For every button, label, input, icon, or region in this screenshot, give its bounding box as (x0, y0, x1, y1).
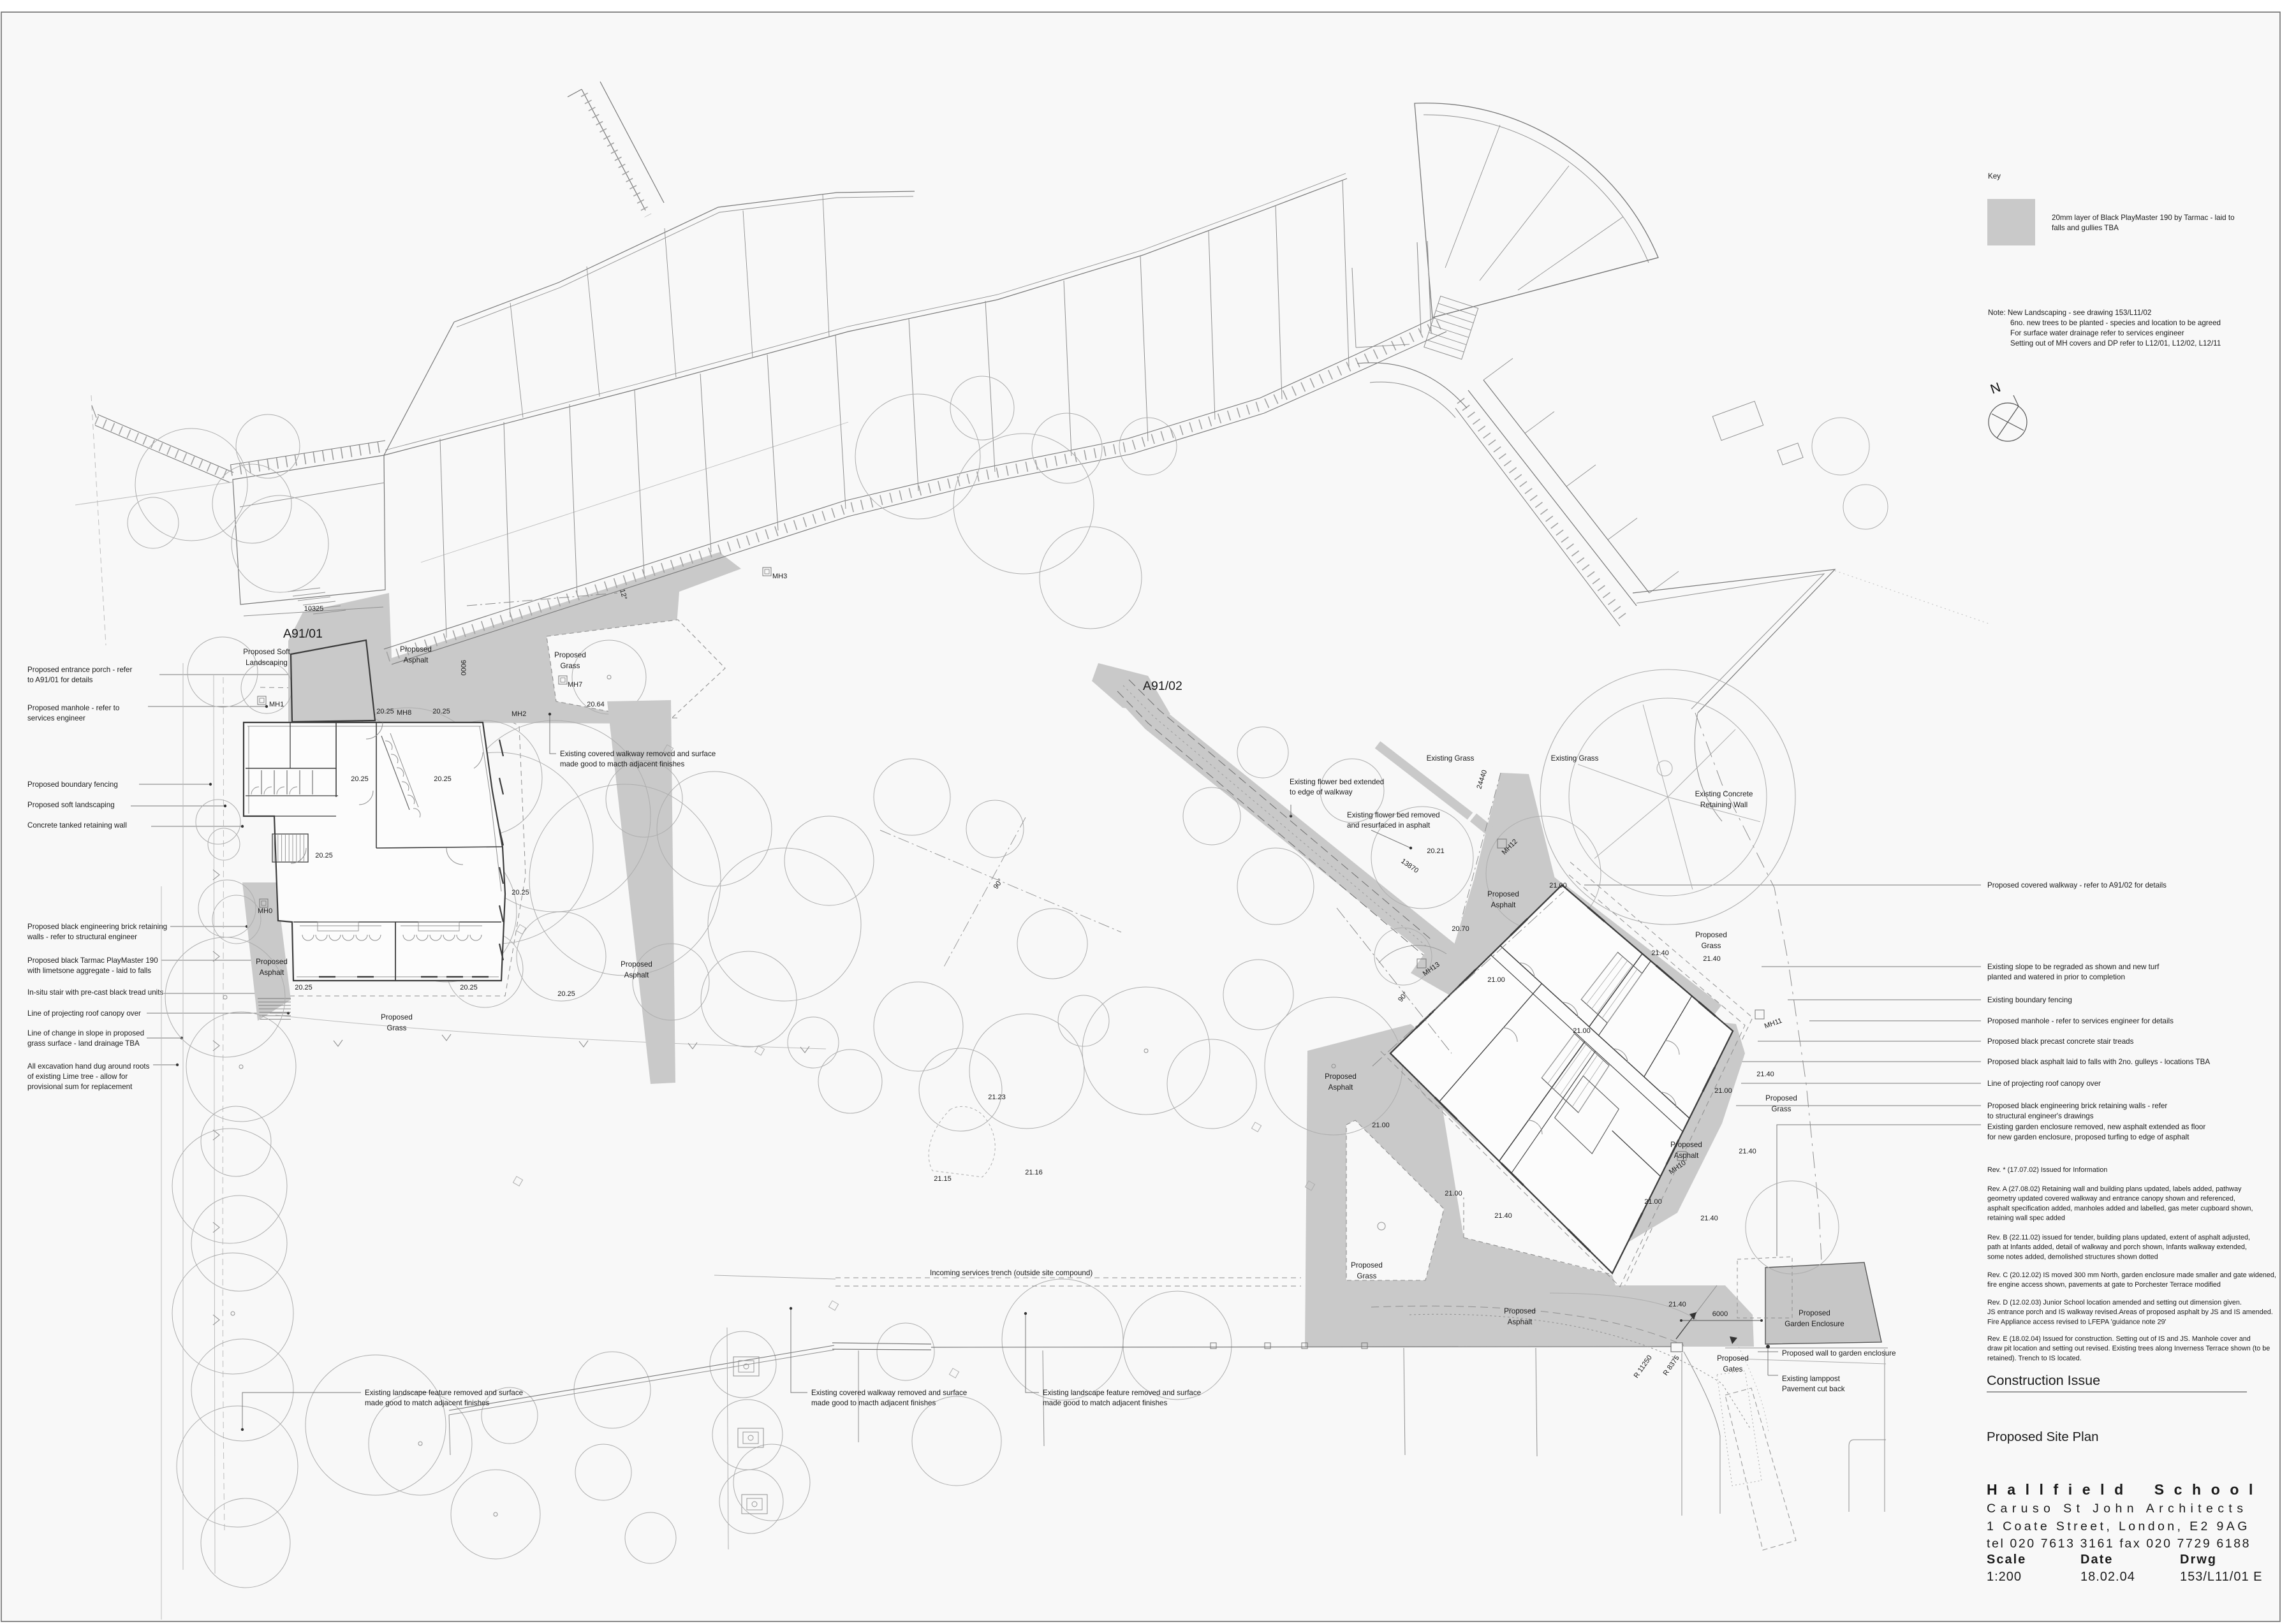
svg-text:21.00: 21.00 (1372, 1122, 1390, 1129)
svg-text:Proposed black precast concret: Proposed black precast concrete stair tr… (1987, 1037, 2134, 1046)
svg-text:services engineer: services engineer (27, 714, 85, 722)
svg-text:made good to match adjacent fi: made good to match adjacent finishes (1043, 1399, 1167, 1407)
svg-text:Proposed: Proposed (1670, 1141, 1702, 1149)
svg-text:Proposed black engineering bri: Proposed black engineering brick retaini… (1987, 1102, 2167, 1110)
svg-text:MH3: MH3 (772, 573, 787, 580)
svg-text:Garden Enclosure: Garden Enclosure (1785, 1320, 1844, 1328)
svg-text:20.25: 20.25 (557, 990, 575, 998)
svg-text:Grass: Grass (1702, 942, 1721, 950)
svg-text:Grass: Grass (1772, 1105, 1792, 1113)
svg-text:Asphalt: Asphalt (404, 656, 429, 664)
svg-text:Proposed: Proposed (1325, 1072, 1357, 1081)
svg-text:20.25: 20.25 (295, 984, 313, 991)
svg-text:Caruso St John Architects: Caruso St John Architects (1987, 1502, 2248, 1516)
svg-text:153/L11/01 E: 153/L11/01 E (2180, 1570, 2263, 1584)
svg-text:Rev. E (18.02.04) Issued for c: Rev. E (18.02.04) Issued for constructio… (1987, 1335, 2251, 1343)
svg-text:asphalt specification added, m: asphalt specification added, manholes ad… (1987, 1204, 2253, 1212)
svg-text:MH7: MH7 (568, 681, 582, 689)
svg-text:Asphalt: Asphalt (624, 971, 649, 979)
svg-text:Grass: Grass (561, 662, 580, 670)
svg-text:21.00: 21.00 (1644, 1198, 1662, 1206)
svg-text:Existing landscape feature rem: Existing landscape feature removed and s… (1043, 1389, 1201, 1397)
svg-text:Proposed: Proposed (1487, 890, 1519, 898)
svg-text:Proposed: Proposed (1799, 1309, 1830, 1317)
svg-text:Rev. D (12.02.03) Junior Schoo: Rev. D (12.02.03) Junior School location… (1987, 1299, 2242, 1306)
svg-text:Proposed covered walkway - ref: Proposed covered walkway - refer to A91/… (1987, 881, 2167, 889)
svg-text:Concrete tanked retaining wall: Concrete tanked retaining wall (27, 821, 127, 830)
svg-text:Asphalt: Asphalt (260, 969, 284, 977)
svg-text:JS entrance porch and IS walkw: JS entrance porch and IS walkway revised… (1987, 1308, 2273, 1316)
svg-text:to structural engineer's drawi: to structural engineer's drawings (1987, 1112, 2094, 1120)
svg-text:for new garden enclosure, prop: for new garden enclosure, proposed turfi… (1987, 1133, 2189, 1141)
svg-text:20.25: 20.25 (432, 708, 450, 715)
svg-text:Rev. B (22.11.02) issued for t: Rev. B (22.11.02) issued for tender, bui… (1987, 1234, 2250, 1241)
svg-text:fire engine access shown, pave: fire engine access shown, pavements at g… (1987, 1281, 2221, 1289)
svg-text:20.25: 20.25 (511, 889, 529, 896)
svg-text:Retaining Wall: Retaining Wall (1700, 801, 1748, 809)
svg-text:Asphalt: Asphalt (1328, 1083, 1353, 1092)
svg-text:Landscaping: Landscaping (246, 659, 288, 667)
svg-text:Asphalt: Asphalt (1491, 901, 1516, 909)
svg-text:A91/02: A91/02 (1143, 679, 1182, 693)
svg-text:A91/01: A91/01 (283, 627, 323, 641)
svg-text:For surface water drainage ref: For surface water drainage refer to serv… (2010, 329, 2184, 337)
svg-text:21.40: 21.40 (1700, 1215, 1718, 1222)
svg-text:18.02.04: 18.02.04 (2080, 1570, 2135, 1584)
svg-text:Existing landscape feature rem: Existing landscape feature removed and s… (365, 1389, 523, 1397)
svg-text:with limetsone aggregate - lai: with limetsone aggregate - laid to falls (27, 967, 151, 975)
svg-text:Proposed Site Plan: Proposed Site Plan (1987, 1430, 2099, 1444)
svg-text:to edge of walkway: to edge of walkway (1290, 788, 1353, 796)
svg-text:of existing Lime tree - allow: of existing Lime tree - allow for (27, 1072, 128, 1081)
svg-text:Fire Appliance access revised: Fire Appliance access revised to LFEPA '… (1987, 1318, 2167, 1326)
svg-text:21.00: 21.00 (1487, 976, 1505, 984)
svg-text:grass surface - land drainage: grass surface - land drainage TBA (27, 1039, 140, 1048)
svg-text:made good to match adjacent fi: made good to match adjacent finishes (365, 1399, 489, 1407)
svg-text:21.40: 21.40 (1703, 955, 1721, 963)
svg-text:20.70: 20.70 (1452, 925, 1469, 933)
svg-text:Existing lamppost: Existing lamppost (1782, 1375, 1841, 1383)
svg-text:Key: Key (1988, 172, 2001, 180)
svg-text:1 Coate Street, London, E2 9AG: 1 Coate Street, London, E2 9AG (1987, 1519, 2250, 1533)
svg-text:MH1: MH1 (269, 701, 284, 708)
svg-text:Proposed black engineering bri: Proposed black engineering brick retaini… (27, 923, 167, 931)
svg-text:Proposed boundary fencing: Proposed boundary fencing (27, 780, 118, 789)
svg-text:21.23: 21.23 (988, 1094, 1006, 1101)
svg-text:21.16: 21.16 (1025, 1169, 1043, 1176)
svg-text:provisional sum for replacemen: provisional sum for replacement (27, 1083, 133, 1091)
svg-text:planted and watered in prior t: planted and watered in prior to completi… (1987, 973, 2125, 981)
svg-text:Note: New Landscaping - see d: Note: New Landscaping - see drawing 153/… (1988, 309, 2151, 317)
svg-text:Drwg: Drwg (2180, 1553, 2217, 1567)
svg-text:Existing boundary fencing: Existing boundary fencing (1987, 996, 2072, 1004)
svg-text:Existing covered walkway remov: Existing covered walkway removed and sur… (811, 1389, 967, 1397)
svg-text:H a l l f i e l d S c h o o: H a l l f i e l d S c h o o l (1987, 1481, 2256, 1498)
svg-text:Proposed wall to garden enclos: Proposed wall to garden enclosure (1782, 1349, 1896, 1357)
svg-text:Proposed: Proposed (256, 958, 288, 966)
svg-text:20.64: 20.64 (587, 701, 605, 708)
svg-text:Construction Issue: Construction Issue (1987, 1373, 2100, 1388)
svg-text:MH2: MH2 (511, 710, 526, 718)
svg-text:Proposed: Proposed (1717, 1354, 1749, 1363)
svg-text:Grass: Grass (387, 1024, 407, 1032)
svg-text:Existing Concrete: Existing Concrete (1695, 790, 1753, 798)
svg-text:Proposed: Proposed (554, 651, 586, 659)
svg-text:Proposed Soft: Proposed Soft (243, 648, 290, 656)
svg-text:21.40: 21.40 (1651, 949, 1669, 957)
svg-text:Pavement cut back: Pavement cut back (1782, 1385, 1845, 1393)
svg-text:MH0: MH0 (258, 907, 272, 915)
svg-text:20.21: 20.21 (1427, 847, 1445, 855)
svg-text:Existing covered walkway remov: Existing covered walkway removed and sur… (560, 750, 716, 758)
svg-text:Proposed black asphalt laid to: Proposed black asphalt laid to falls wit… (1987, 1058, 2210, 1066)
svg-text:Proposed: Proposed (621, 960, 652, 969)
svg-text:All excavation hand dug around: All excavation hand dug around roots (27, 1062, 150, 1071)
svg-text:Rev. A (27.08.02) Retaining wa: Rev. A (27.08.02) Retaining wall and bui… (1987, 1185, 2242, 1193)
svg-text:Proposed manhole - refer to: Proposed manhole - refer to (27, 704, 119, 712)
svg-text:Proposed black Tarmac PlayMast: Proposed black Tarmac PlayMaster 190 (27, 956, 158, 965)
svg-text:Asphalt: Asphalt (1508, 1318, 1533, 1326)
svg-text:20.25: 20.25 (351, 775, 369, 783)
svg-text:Date: Date (2080, 1553, 2113, 1567)
svg-text:20.25: 20.25 (315, 852, 333, 860)
svg-text:Rev. C (20.12.02) IS moved 300: Rev. C (20.12.02) IS moved 300 mm North,… (1987, 1271, 2276, 1279)
svg-text:falls and gullies TBA: falls and gullies TBA (2052, 224, 2119, 232)
svg-text:21.00: 21.00 (1573, 1027, 1591, 1035)
svg-text:Line of projecting roof canopy: Line of projecting roof canopy over (1987, 1079, 2101, 1088)
svg-text:some notes added, demolished s: some notes added, demolished structures … (1987, 1253, 2158, 1261)
svg-text:Proposed entrance porch - refe: Proposed entrance porch - refer (27, 666, 132, 674)
svg-text:Line of change in slope in pro: Line of change in slope in proposed (27, 1029, 144, 1037)
svg-text:21.00: 21.00 (1549, 882, 1567, 889)
svg-text:retained). Trench to IS locate: retained). Trench to IS located. (1987, 1354, 2082, 1362)
svg-text:20.25: 20.25 (460, 984, 478, 991)
svg-text:Proposed: Proposed (1765, 1094, 1797, 1102)
svg-text:Grass: Grass (1357, 1272, 1377, 1280)
svg-text:Existing Grass: Existing Grass (1551, 754, 1599, 763)
svg-text:walls - refer to structural en: walls - refer to structural engineer (27, 933, 137, 941)
svg-text:In-situ stair with pre-cast bl: In-situ stair with pre-cast black tread … (27, 988, 163, 997)
svg-text:Setting out of MH covers and D: Setting out of MH covers and DP refer to… (2010, 339, 2221, 347)
svg-text:retaining wall spec added: retaining wall spec added (1987, 1215, 2065, 1222)
svg-text:geometry updated covered walkw: geometry updated covered walkway and ent… (1987, 1195, 2235, 1203)
svg-text:Gates: Gates (1723, 1365, 1743, 1373)
svg-text:Existing flower bed extended: Existing flower bed extended (1290, 778, 1384, 786)
svg-text:Incoming services trench (outs: Incoming services trench (outside site c… (930, 1269, 1093, 1277)
svg-text:6000: 6000 (1712, 1310, 1728, 1318)
svg-text:21.00: 21.00 (1445, 1190, 1462, 1197)
svg-text:Existing slope to be regraded: Existing slope to be regraded as shown a… (1987, 963, 2160, 971)
svg-text:Proposed: Proposed (1504, 1307, 1536, 1315)
svg-text:Existing Grass: Existing Grass (1427, 754, 1475, 763)
svg-text:1:200: 1:200 (1987, 1570, 2022, 1584)
svg-text:Proposed soft landscaping: Proposed soft landscaping (27, 801, 115, 809)
svg-text:21.40: 21.40 (1494, 1212, 1512, 1220)
svg-text:21.40: 21.40 (1739, 1148, 1756, 1155)
svg-text:21.40: 21.40 (1756, 1071, 1774, 1078)
svg-text:path at Infants added, detail: path at Infants added, detail of walkway… (1987, 1243, 2247, 1251)
svg-text:Proposed: Proposed (1695, 931, 1727, 939)
svg-text:Existing garden enclosure remo: Existing garden enclosure removed, new a… (1987, 1123, 2205, 1131)
svg-text:Rev. * (17.07.02) Issued for I: Rev. * (17.07.02) Issued for Information (1987, 1166, 2107, 1174)
svg-text:draw pit location and setting: draw pit location and setting out revise… (1987, 1345, 2270, 1352)
svg-text:to A91/01 for details: to A91/01 for details (27, 676, 93, 684)
svg-text:Proposed: Proposed (400, 645, 432, 654)
svg-text:made good to macth adjacent fi: made good to macth adjacent finishes (560, 760, 684, 768)
svg-text:Proposed manhole - refer to se: Proposed manhole - refer to services eng… (1987, 1017, 2174, 1025)
svg-text:Scale: Scale (1987, 1553, 2026, 1567)
svg-text:MH8: MH8 (397, 709, 411, 717)
svg-text:21.40: 21.40 (1668, 1301, 1686, 1308)
svg-text:20.25: 20.25 (376, 708, 394, 715)
svg-text:21.00: 21.00 (1714, 1087, 1732, 1095)
svg-text:9000: 9000 (459, 660, 467, 675)
svg-text:20mm layer of Black PlayMaster: 20mm layer of Black PlayMaster 190 by Ta… (2052, 214, 2235, 222)
svg-text:20.25: 20.25 (434, 775, 452, 783)
svg-text:and resurfaced in asphalt: and resurfaced in asphalt (1347, 821, 1431, 830)
svg-text:21.15: 21.15 (934, 1175, 952, 1183)
svg-text:Line of projecting roof canopy: Line of projecting roof canopy over (27, 1009, 141, 1018)
svg-text:tel 020 7613 3161 fax 020 772: tel 020 7613 3161 fax 020 7729 6188 (1987, 1537, 2251, 1551)
svg-text:6no. new trees to be planted -: 6no. new trees to be planted - species a… (2010, 319, 2221, 327)
svg-text:made good to macth adjacent fi: made good to macth adjacent finishes (811, 1399, 936, 1407)
svg-text:Proposed: Proposed (1351, 1261, 1383, 1269)
svg-text:10325: 10325 (304, 605, 324, 613)
svg-text:Proposed: Proposed (381, 1013, 413, 1021)
svg-text:Existing flower bed removed: Existing flower bed removed (1347, 811, 1440, 819)
